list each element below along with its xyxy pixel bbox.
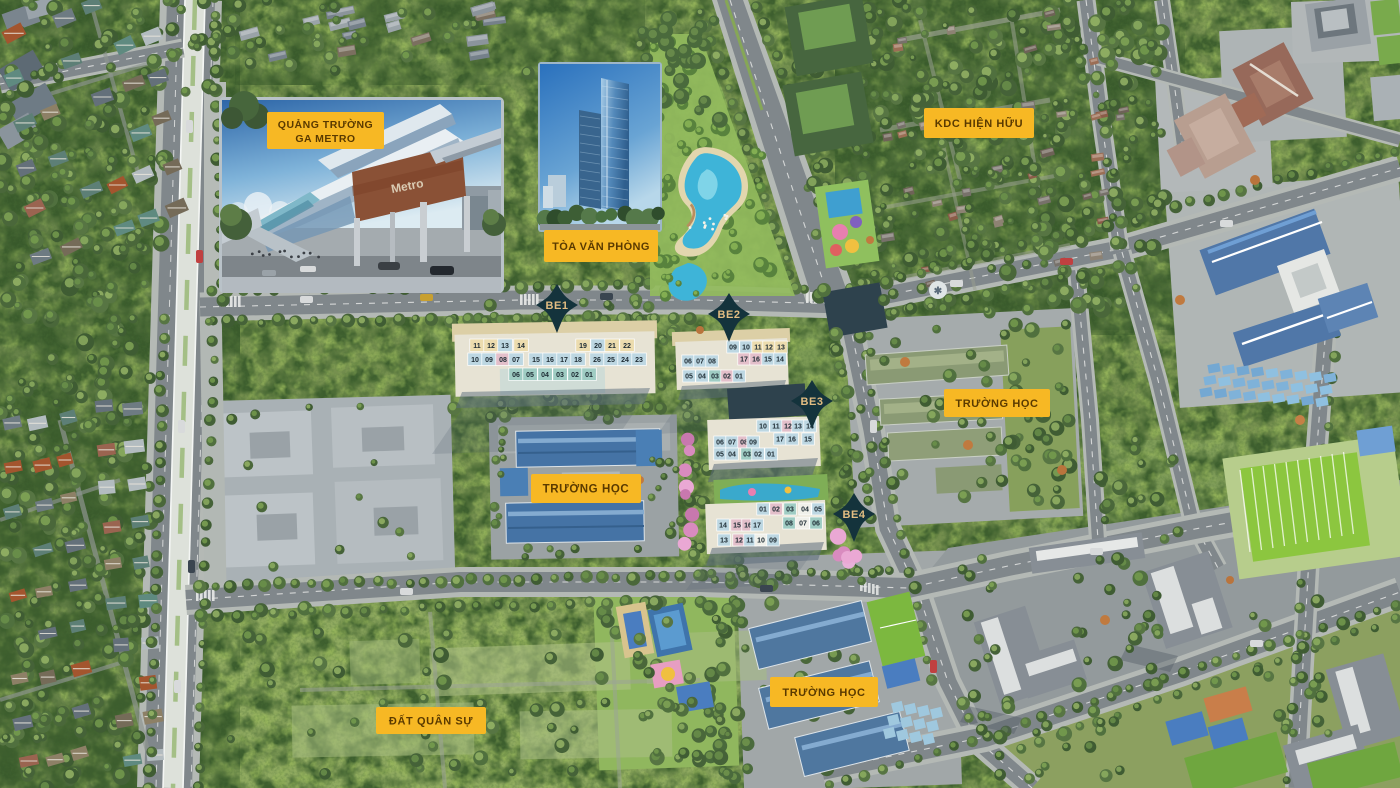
svg-text:02: 02 (571, 372, 579, 379)
svg-text:11: 11 (772, 424, 780, 431)
svg-text:02: 02 (754, 452, 762, 459)
svg-text:04: 04 (801, 507, 809, 514)
svg-text:09: 09 (749, 440, 757, 447)
svg-text:17: 17 (753, 523, 761, 530)
svg-text:08: 08 (708, 359, 716, 366)
svg-text:02: 02 (772, 507, 780, 514)
svg-text:07: 07 (512, 357, 520, 364)
svg-text:12: 12 (487, 343, 495, 350)
svg-text:BE1: BE1 (546, 300, 569, 312)
svg-text:ĐẤT QUÂN SỰ: ĐẤT QUÂN SỰ (389, 715, 473, 728)
svg-text:24: 24 (621, 357, 629, 364)
svg-text:17: 17 (776, 437, 784, 444)
svg-text:08: 08 (785, 521, 793, 528)
svg-text:15: 15 (764, 357, 772, 364)
svg-text:TRƯỜNG HỌC: TRƯỜNG HỌC (543, 483, 630, 496)
svg-text:TÒA VĂN PHÒNG: TÒA VĂN PHÒNG (552, 240, 650, 253)
svg-text:13: 13 (794, 424, 802, 431)
svg-text:10: 10 (471, 357, 479, 364)
svg-text:09: 09 (729, 345, 737, 352)
svg-text:14: 14 (776, 357, 784, 364)
svg-text:QUẢNG TRƯỜNG: QUẢNG TRƯỜNG (278, 118, 373, 131)
svg-text:09: 09 (485, 357, 493, 364)
svg-text:17: 17 (560, 357, 568, 364)
svg-text:02: 02 (723, 374, 731, 381)
svg-text:14: 14 (517, 343, 525, 350)
svg-text:01: 01 (585, 372, 593, 379)
svg-text:06: 06 (684, 359, 692, 366)
svg-text:TRƯỜNG HỌC: TRƯỜNG HỌC (955, 397, 1038, 410)
svg-text:15: 15 (804, 437, 812, 444)
svg-text:05: 05 (814, 507, 822, 514)
svg-text:12: 12 (765, 345, 773, 352)
svg-text:10: 10 (742, 345, 750, 352)
svg-text:05: 05 (685, 374, 693, 381)
svg-text:23: 23 (635, 357, 643, 364)
svg-text:03: 03 (743, 452, 751, 459)
svg-text:19: 19 (579, 343, 587, 350)
svg-text:10: 10 (757, 538, 765, 545)
svg-text:20: 20 (594, 343, 602, 350)
svg-text:TRƯỜNG HỌC: TRƯỜNG HỌC (782, 686, 865, 699)
svg-text:07: 07 (799, 521, 807, 528)
svg-text:10: 10 (759, 424, 767, 431)
svg-text:16: 16 (752, 357, 760, 364)
svg-text:16: 16 (546, 357, 554, 364)
svg-text:22: 22 (623, 343, 631, 350)
svg-text:05: 05 (716, 452, 724, 459)
svg-text:06: 06 (812, 521, 820, 528)
svg-text:04: 04 (698, 374, 706, 381)
svg-text:KDC HIỆN HỮU: KDC HIỆN HỮU (935, 117, 1023, 130)
svg-text:BE3: BE3 (801, 396, 824, 408)
svg-text:GA METRO: GA METRO (295, 133, 355, 145)
svg-text:03: 03 (786, 507, 794, 514)
svg-text:04: 04 (541, 372, 549, 379)
svg-text:05: 05 (526, 372, 534, 379)
svg-text:06: 06 (716, 440, 724, 447)
svg-text:03: 03 (556, 372, 564, 379)
svg-text:11: 11 (746, 538, 754, 545)
svg-text:11: 11 (754, 345, 762, 352)
svg-text:25: 25 (607, 357, 615, 364)
svg-text:12: 12 (784, 424, 792, 431)
svg-text:✱: ✱ (934, 286, 943, 297)
svg-text:13: 13 (501, 343, 509, 350)
svg-text:01: 01 (735, 374, 743, 381)
svg-text:21: 21 (608, 343, 616, 350)
svg-text:13: 13 (777, 345, 785, 352)
svg-text:07: 07 (728, 440, 736, 447)
svg-text:08: 08 (499, 357, 507, 364)
svg-text:11: 11 (473, 343, 481, 350)
svg-text:26: 26 (593, 357, 601, 364)
svg-text:01: 01 (759, 507, 767, 514)
svg-text:13: 13 (720, 538, 728, 545)
svg-text:03: 03 (711, 374, 719, 381)
svg-text:01: 01 (767, 452, 775, 459)
svg-text:16: 16 (788, 437, 796, 444)
svg-text:15: 15 (532, 357, 540, 364)
svg-text:14: 14 (719, 523, 727, 530)
svg-text:06: 06 (512, 372, 520, 379)
svg-text:17: 17 (740, 357, 748, 364)
svg-text:15: 15 (733, 523, 741, 530)
svg-text:07: 07 (696, 359, 704, 366)
svg-text:BE2: BE2 (718, 309, 741, 321)
svg-text:BE4: BE4 (843, 509, 866, 521)
svg-text:09: 09 (769, 538, 777, 545)
svg-text:18: 18 (574, 357, 582, 364)
svg-text:12: 12 (735, 538, 743, 545)
svg-text:04: 04 (728, 452, 736, 459)
